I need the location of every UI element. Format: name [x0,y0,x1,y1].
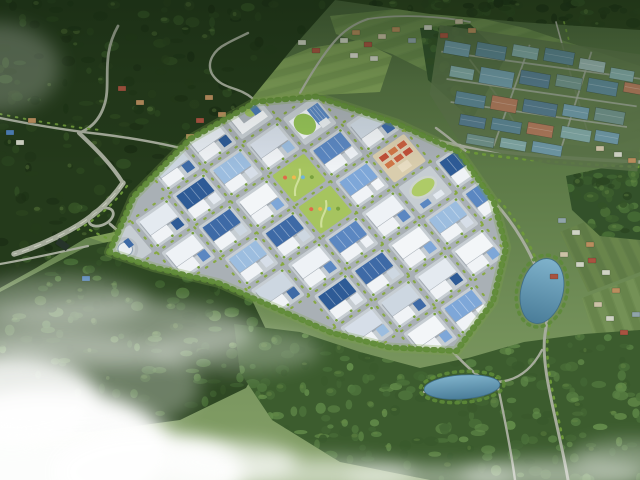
farm-house [572,230,580,235]
farm-house [606,316,614,321]
farm-house [632,312,640,317]
aerial-rendering: Bird's-eye master-plan rendering of an i… [0,0,640,480]
farm-house [586,242,594,247]
farm-house [576,262,584,267]
farm-house [594,302,602,307]
farm-house [602,270,610,275]
farm-house [588,258,596,263]
farm-house [558,218,566,223]
farm-house [620,330,628,335]
farm-house [560,252,568,257]
farm-house [612,288,620,293]
cloud [150,328,320,372]
light-grade [0,0,640,170]
farm-house [550,274,558,279]
aerial-render-canvas [0,0,640,480]
